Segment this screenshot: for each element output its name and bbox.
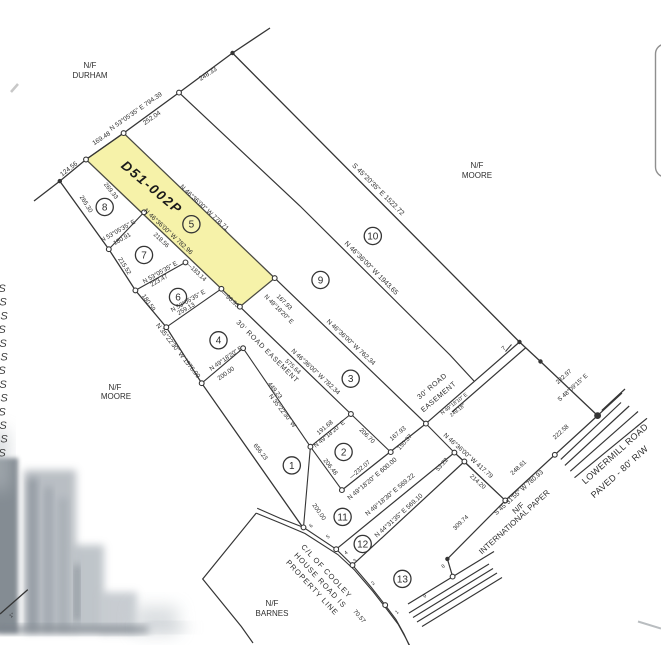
- svg-text:MOORE: MOORE: [462, 171, 492, 180]
- svg-text:S: S: [0, 434, 8, 446]
- svg-text:MOORE: MOORE: [101, 392, 131, 401]
- svg-text:S: S: [0, 352, 8, 364]
- svg-text:12: 12: [357, 539, 369, 550]
- svg-text:S: S: [0, 406, 6, 418]
- svg-text:BARNES: BARNES: [256, 609, 289, 618]
- svg-text:N/F: N/F: [266, 599, 279, 608]
- svg-text:7: 7: [141, 250, 147, 261]
- svg-text:S: S: [0, 420, 7, 432]
- svg-text:4: 4: [216, 336, 222, 347]
- svg-text:S: S: [0, 379, 7, 391]
- svg-text:S: S: [0, 283, 6, 295]
- svg-text:S: S: [0, 365, 6, 377]
- svg-text:N/F: N/F: [84, 61, 97, 70]
- svg-text:3: 3: [348, 374, 354, 385]
- svg-text:S: S: [0, 393, 8, 405]
- svg-text:S: S: [0, 297, 7, 309]
- svg-text:13: 13: [397, 574, 409, 585]
- svg-text:N/F: N/F: [109, 383, 122, 392]
- svg-text:11: 11: [337, 512, 348, 523]
- svg-text:S: S: [0, 310, 8, 322]
- svg-text:9: 9: [318, 275, 324, 286]
- svg-text:S: S: [0, 338, 7, 350]
- svg-text:S: S: [0, 324, 6, 336]
- svg-text:8: 8: [102, 202, 108, 213]
- svg-text:S: S: [0, 447, 6, 459]
- svg-text:10: 10: [367, 231, 379, 242]
- svg-text:5: 5: [189, 220, 195, 231]
- svg-text:1: 1: [289, 461, 295, 472]
- svg-text:DURHAM: DURHAM: [72, 71, 107, 80]
- svg-text:2: 2: [341, 447, 347, 458]
- svg-text:N/F: N/F: [471, 161, 484, 170]
